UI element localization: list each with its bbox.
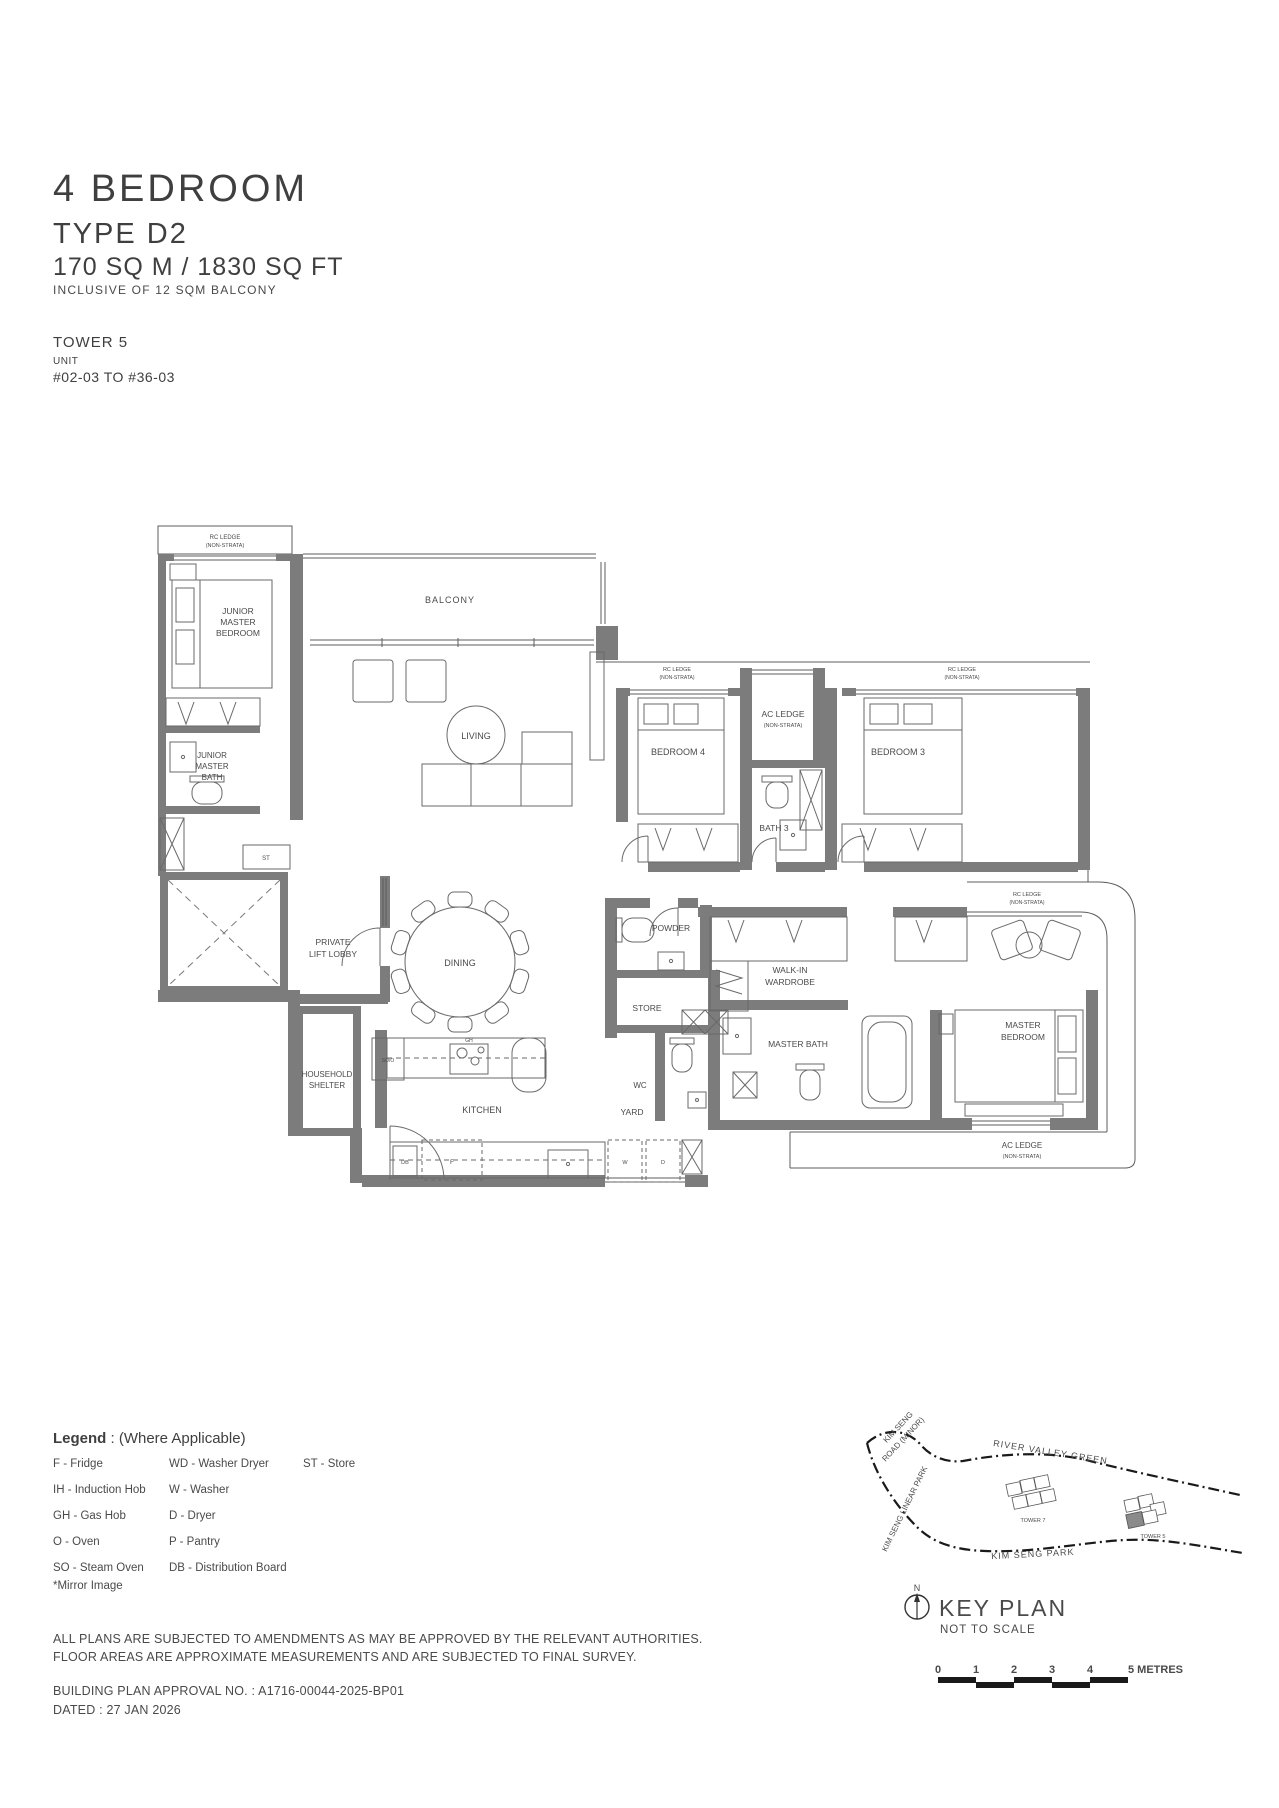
bedroom4-label: BEDROOM 4 (651, 747, 705, 757)
kim-seng-park-label: KIM SENG PARK (991, 1547, 1075, 1561)
lift-lobby-l1: PRIVATE (315, 937, 350, 947)
ac-ledge-label-bottom: AC LEDGE (1002, 1141, 1042, 1150)
scale-1: 1 (973, 1664, 979, 1676)
junior-master-bedroom-l3: BEDROOM (216, 628, 260, 638)
unit-range: #02-03 TO #36-03 (53, 369, 175, 385)
legend-mirror-note: *Mirror Image (53, 1580, 123, 1592)
area-note: INCLUSIVE OF 12 SQM BALCONY (53, 283, 277, 297)
legend-item: P - Pantry (169, 1536, 220, 1548)
disclaimer-line2: FLOOR AREAS ARE APPROXIMATE MEASUREMENTS… (53, 1650, 637, 1664)
tower-label: TOWER 5 (53, 334, 128, 351)
fridge-label: F (450, 1159, 454, 1166)
legend-item: DB - Distribution Board (169, 1562, 287, 1574)
key-plan-subtitle: NOT TO SCALE (940, 1624, 1036, 1636)
scale-2: 2 (1011, 1664, 1017, 1676)
legend-item: GH - Gas Hob (53, 1510, 126, 1522)
household-l2: SHELTER (309, 1081, 346, 1090)
junior-master-bedroom-l2: MASTER (220, 617, 255, 627)
site-boundary-top (867, 1432, 1240, 1495)
legend-item: SO - Steam Oven (53, 1562, 144, 1574)
legend-item: F - Fridge (53, 1458, 103, 1470)
bedroom3-label: BEDROOM 3 (871, 747, 925, 757)
junior-master-bath-l1: JUNIOR (197, 751, 227, 760)
kitchen-label: KITCHEN (462, 1105, 502, 1115)
ac-ledge-label-mid: AC LEDGE (762, 709, 805, 719)
junior-master-bedroom-l1: JUNIOR (222, 606, 254, 616)
tower5-label: TOWER 5 (1141, 1534, 1166, 1540)
scale-bar-segments (938, 1677, 1128, 1688)
legend-item: WD - Washer Dryer (169, 1458, 269, 1470)
scale-3: 3 (1049, 1664, 1055, 1676)
linear-park-label: KIM SENG LINEAR PARK (880, 1464, 929, 1553)
ac-ledge-strata-bottom: (NON-STRATA) (1003, 1154, 1042, 1160)
unit-label: UNIT (53, 356, 78, 367)
bath3-label: BATH 3 (759, 823, 788, 833)
key-plan: KIM SENG ROAD (MINOR) KIM SENG LINEAR PA… (855, 1395, 1250, 1650)
key-plan-title: KEY PLAN (939, 1595, 1067, 1621)
page-title: 4 BEDROOM (53, 168, 308, 211)
dining-label: DINING (444, 958, 476, 968)
master-bedroom-l1: MASTER (1005, 1020, 1040, 1030)
legend-item: ST - Store (303, 1458, 355, 1470)
river-valley-label: RIVER VALLEY GREEN (993, 1438, 1109, 1466)
tower5-footprint (1124, 1494, 1166, 1529)
lift-lobby-l2: LIFT LOBBY (309, 949, 357, 959)
household-l1: HOUSEHOLD (302, 1070, 353, 1079)
unit-area: 170 SQ M / 1830 SQ FT (53, 253, 344, 282)
rc-ledge-label-b4: RC LEDGE (663, 667, 691, 673)
approval-date: DATED : 27 JAN 2026 (53, 1703, 181, 1717)
junior-master-bath-l2: MASTER (195, 762, 229, 771)
tower5-highlight (1126, 1511, 1145, 1528)
rc-ledge-label-b3: RC LEDGE (948, 667, 976, 673)
rc-ledge-strata-right: (NON-STRATA) (1009, 900, 1044, 906)
walkin-l1: WALK-IN (772, 965, 807, 975)
scale-4: 4 (1087, 1664, 1094, 1676)
legend-item: D - Dryer (169, 1510, 216, 1522)
legend-title: Legend : (Where Applicable) (53, 1430, 413, 1447)
legend-title-word: Legend (53, 1430, 106, 1447)
scale-0: 0 (935, 1664, 941, 1676)
approval-no: BUILDING PLAN APPROVAL NO. : A1716-00044… (53, 1684, 404, 1698)
scale-5-metres: 5 METRES (1128, 1664, 1183, 1676)
master-bath-label: MASTER BATH (768, 1039, 828, 1049)
ac-ledge-strata-mid: (NON-STRATA) (764, 723, 803, 729)
legend-item: IH - Induction Hob (53, 1484, 146, 1496)
north-label: N (914, 1583, 921, 1593)
living-label: LIVING (461, 731, 491, 741)
floor-plan: RC LEDGE (NON-STRATA) JUNIOR MASTER BEDR… (150, 520, 1140, 1200)
wc-label: WC (633, 1081, 647, 1090)
gas-hob-label: GH (465, 1038, 473, 1044)
washer-label: W (622, 1160, 628, 1166)
lift-x (168, 880, 280, 986)
unit-type: TYPE D2 (53, 218, 188, 251)
rc-ledge-label-right: RC LEDGE (1013, 892, 1041, 898)
rc-ledge-strata-tl: (NON-STRATA) (206, 543, 245, 549)
rc-ledge-label-tl: RC LEDGE (210, 535, 241, 541)
junior-master-bath-l3: BATH (202, 773, 223, 782)
steam-oven-label: SO/O (382, 1058, 395, 1064)
yard-label: YARD (621, 1107, 644, 1117)
disclaimer-line1: ALL PLANS ARE SUBJECTED TO AMENDMENTS AS… (53, 1632, 703, 1646)
scale-bar: 0 1 2 3 4 5 METRES (930, 1660, 1190, 1702)
legend-item: O - Oven (53, 1536, 100, 1548)
legend-title-suffix: : (Where Applicable) (106, 1430, 245, 1447)
legend: Legend : (Where Applicable) F - Fridge I… (53, 1430, 413, 1610)
rc-ledge-strata-b3: (NON-STRATA) (944, 675, 979, 681)
dryer-label: D (661, 1160, 665, 1166)
db-label: DB (401, 1160, 409, 1166)
walkin-l2: WARDROBE (765, 977, 815, 987)
legend-item: W - Washer (169, 1484, 229, 1496)
north-compass: N (905, 1583, 929, 1619)
st-label: ST (262, 856, 270, 862)
balcony-label: BALCONY (425, 595, 475, 605)
powder-label: POWDER (652, 923, 690, 933)
store-label: STORE (632, 1003, 661, 1013)
floor-plan-page: 4 BEDROOM TYPE D2 170 SQ M / 1830 SQ FT … (0, 0, 1279, 1808)
master-bedroom-l2: BEDROOM (1001, 1032, 1045, 1042)
tower7-footprint (1006, 1475, 1056, 1510)
rc-ledge-strata-b4: (NON-STRATA) (659, 675, 694, 681)
tower7-label: TOWER 7 (1021, 1518, 1046, 1524)
walls (158, 554, 1098, 1187)
